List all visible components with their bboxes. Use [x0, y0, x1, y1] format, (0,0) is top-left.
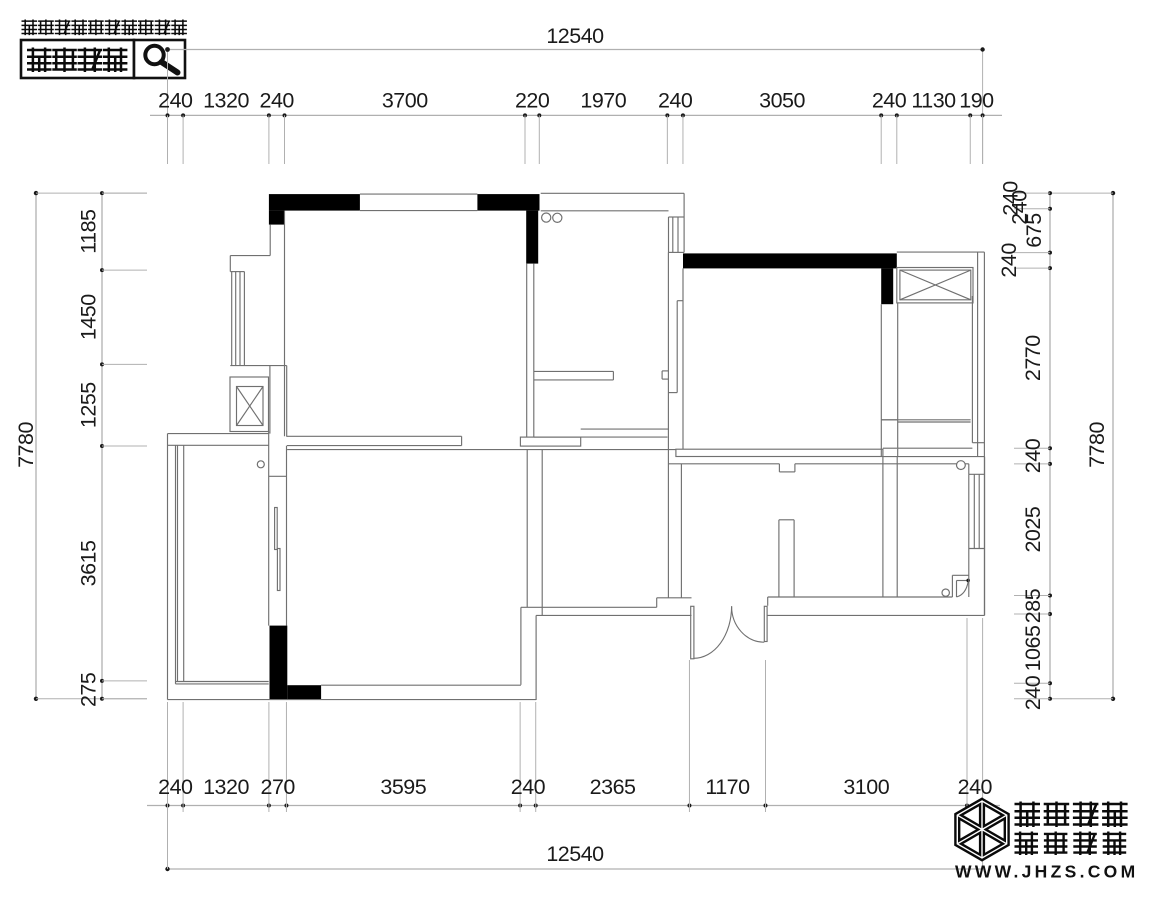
- svg-text:2770: 2770: [1021, 335, 1045, 381]
- svg-text:7780: 7780: [1085, 422, 1109, 468]
- svg-text:1255: 1255: [77, 382, 101, 428]
- svg-text:240: 240: [872, 89, 907, 113]
- svg-text:3615: 3615: [77, 540, 101, 586]
- svg-text:1065: 1065: [1021, 625, 1045, 671]
- svg-text:1320: 1320: [203, 89, 249, 113]
- svg-text:12540: 12540: [546, 24, 604, 48]
- svg-text:1970: 1970: [580, 89, 626, 113]
- svg-text:675: 675: [1022, 213, 1046, 248]
- svg-text:1185: 1185: [77, 209, 101, 254]
- svg-text:WWW.JHZS.COM: WWW.JHZS.COM: [955, 862, 1138, 882]
- svg-text:2365: 2365: [590, 775, 636, 799]
- svg-text:275: 275: [77, 672, 101, 707]
- svg-text:2025: 2025: [1021, 506, 1045, 552]
- svg-text:3050: 3050: [759, 89, 805, 113]
- svg-text:3700: 3700: [382, 89, 428, 113]
- svg-text:220: 220: [515, 89, 550, 113]
- svg-text:240: 240: [158, 89, 193, 113]
- svg-text:240: 240: [1021, 438, 1045, 473]
- svg-text:240: 240: [511, 775, 546, 799]
- svg-text:1130: 1130: [911, 89, 956, 113]
- svg-text:240: 240: [997, 243, 1021, 278]
- svg-text:190: 190: [959, 89, 994, 113]
- svg-text:240: 240: [958, 775, 993, 799]
- svg-text:12540: 12540: [546, 842, 604, 866]
- svg-text:240: 240: [1021, 675, 1045, 710]
- svg-text:285: 285: [1021, 588, 1045, 623]
- svg-text:3100: 3100: [843, 775, 889, 799]
- svg-text:1450: 1450: [77, 294, 101, 340]
- svg-text:7780: 7780: [14, 422, 38, 468]
- svg-text:240: 240: [260, 89, 295, 113]
- svg-text:270: 270: [260, 775, 295, 799]
- svg-text:1320: 1320: [203, 775, 249, 799]
- svg-text:1170: 1170: [705, 775, 750, 799]
- svg-text:240: 240: [658, 89, 693, 113]
- svg-text:240: 240: [158, 775, 193, 799]
- svg-text:3595: 3595: [380, 775, 426, 799]
